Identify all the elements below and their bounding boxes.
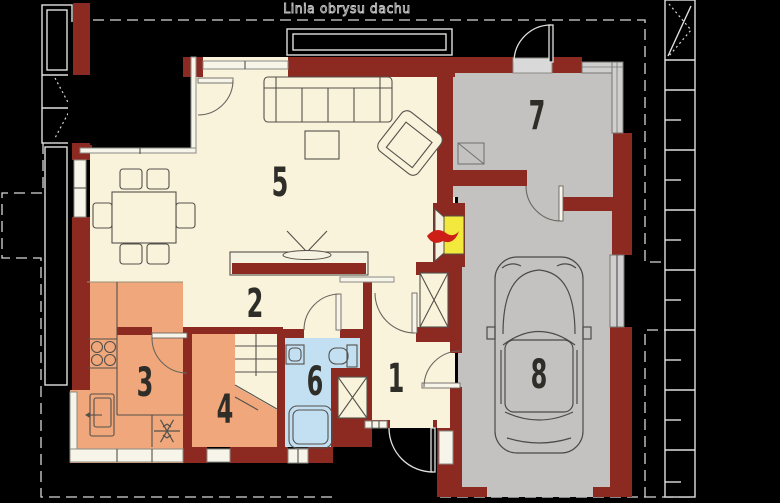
room-number-utility-room: 7 — [529, 91, 546, 138]
staircase — [235, 333, 283, 410]
room-number-corridor: 2 — [247, 279, 264, 326]
window-bathroom — [288, 449, 308, 463]
window-living-top — [203, 61, 288, 69]
window-garage-right — [610, 255, 624, 327]
floor-plan-drawing: 1 2 3 4 5 6 7 8 Linia obrysu dachu — [0, 0, 780, 503]
vent-shaft-bathroom — [338, 377, 367, 418]
coffee-table — [305, 131, 339, 159]
room-number-storage: 4 — [217, 385, 234, 432]
exterior-stairs-left — [42, 5, 72, 143]
vent-shaft-hall — [420, 273, 448, 327]
floor-garage — [458, 197, 612, 490]
sofa — [264, 77, 392, 122]
room-number-garage: 8 — [531, 350, 548, 397]
exterior-stairs-right — [665, 0, 695, 497]
window-dining-left — [74, 160, 86, 217]
room-number-living-room: 5 — [272, 158, 289, 205]
chimney-left — [45, 147, 67, 385]
floor-plan-canvas: 1 2 3 4 5 6 7 8 Linia obrysu dachu — [0, 0, 780, 503]
window-entry-sidelight — [439, 431, 453, 464]
window-storage — [207, 449, 230, 462]
roof-window-top — [287, 29, 452, 55]
room-number-kitchen: 3 — [137, 358, 154, 405]
garage-door-opening — [487, 490, 593, 497]
entry-doormat — [365, 421, 387, 428]
partition-rail — [340, 277, 394, 282]
utility-door-threshold — [513, 58, 552, 73]
roof-outline-label: Linia obrysu dachu — [283, 2, 410, 18]
room-number-bathroom: 6 — [307, 357, 324, 404]
room-number-hall: 1 — [388, 354, 405, 401]
